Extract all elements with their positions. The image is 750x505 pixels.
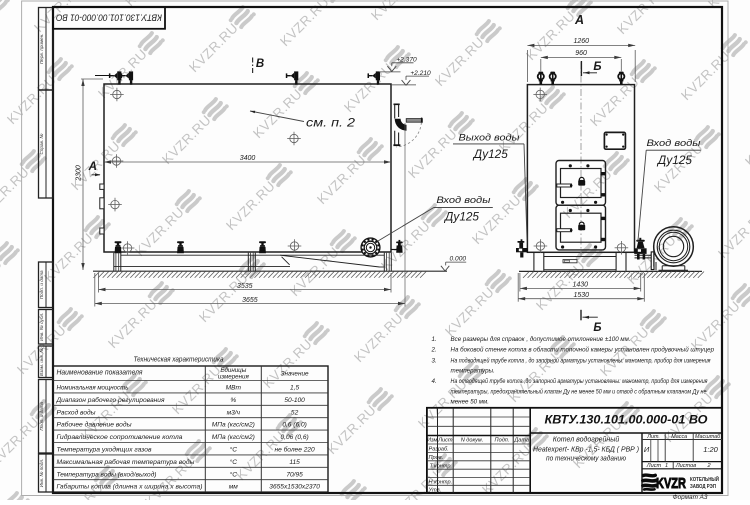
svg-text:На подводящей трубе котла ,: На подводящей трубе котла , до запорной … bbox=[451, 357, 712, 364]
svg-text:Изм: Изм bbox=[427, 438, 438, 444]
svg-text:На отводящей трубе котла ,до з: На отводящей трубе котла ,до запорной ар… bbox=[451, 378, 709, 385]
svg-text:1: 1 bbox=[665, 463, 668, 469]
svg-text:2300: 2300 bbox=[75, 165, 82, 182]
svg-text:Инв. № подл.: Инв. № подл. bbox=[39, 459, 44, 488]
svg-text:Т.контр.: Т.контр. bbox=[430, 464, 453, 470]
svg-text:Heatexpert- КВр -1,5- КБД ( РВ: Heatexpert- КВр -1,5- КБД ( РВР ) bbox=[533, 446, 639, 453]
svg-text:мм: мм bbox=[229, 484, 239, 491]
svg-text:Б: Б bbox=[593, 322, 601, 334]
svg-text:Техническая характеристика: Техническая характеристика bbox=[134, 355, 224, 364]
svg-text:Взам. инв. №: Взам. инв. № bbox=[39, 348, 44, 376]
svg-text:3400: 3400 bbox=[240, 155, 256, 162]
svg-text:1:20: 1:20 bbox=[703, 445, 718, 454]
svg-text:КВТУ.130.101.00.000-01 ВО: КВТУ.130.101.00.000-01 ВО bbox=[545, 414, 708, 426]
svg-text:Разраб.: Разраб. bbox=[429, 447, 449, 453]
svg-text:0.000: 0.000 bbox=[450, 255, 467, 262]
svg-text:МВт: МВт bbox=[226, 385, 242, 392]
svg-text:Утв.: Утв. bbox=[428, 487, 442, 493]
svg-text:KVZR: KVZR bbox=[656, 476, 686, 492]
svg-text:3655х1530х2370: 3655х1530х2370 bbox=[269, 484, 320, 491]
svg-text:Подп. и дата: Подп. и дата bbox=[39, 270, 44, 299]
svg-text:Рабочее давление воды: Рабочее давление воды bbox=[57, 421, 132, 429]
svg-text:4.: 4. bbox=[432, 378, 437, 385]
svg-text:КОТЕЛЬНЫЙ: КОТЕЛЬНЫЙ bbox=[690, 475, 719, 483]
svg-text:менее 50 мм.: менее 50 мм. bbox=[451, 399, 490, 406]
svg-text:На боковой стенке котла в обла: На боковой стенке котла в области топочн… bbox=[451, 347, 715, 354]
svg-text:115: 115 bbox=[289, 459, 300, 466]
svg-text:50-100: 50-100 bbox=[284, 397, 305, 404]
svg-text:Номинальная мощность: Номинальная мощность bbox=[57, 385, 129, 392]
svg-text:Н.контр.: Н.контр. bbox=[429, 480, 453, 486]
svg-text:1260: 1260 bbox=[574, 38, 590, 45]
svg-text:°С: °С bbox=[230, 458, 238, 466]
svg-text:Лист: Лист bbox=[646, 463, 662, 469]
svg-text:И: И bbox=[644, 445, 650, 454]
svg-text:А: А bbox=[88, 161, 97, 173]
svg-text:%: % bbox=[230, 397, 236, 404]
svg-text:Максимальная рабочая температу: Максимальная рабочая температура воды bbox=[57, 458, 195, 466]
svg-text:0,06 (0,6): 0,06 (0,6) bbox=[280, 434, 308, 441]
svg-text:Масса: Масса bbox=[671, 434, 687, 440]
svg-text:N докум.: N докум. bbox=[461, 438, 484, 444]
svg-text:по техническому заданию: по техническому заданию bbox=[546, 454, 627, 462]
svg-text:Справ. №: Справ. № bbox=[39, 134, 44, 155]
svg-text:Котел водогрейный: Котел водогрейный bbox=[553, 436, 620, 444]
svg-text:Гидравлическое сопротивление к: Гидравлическое сопротивление котла bbox=[57, 433, 183, 441]
svg-text:1.: 1. bbox=[432, 336, 437, 343]
svg-text:Все размеры для справок , допу: Все размеры для справок , допустимое отк… bbox=[451, 336, 631, 343]
svg-text:Наименование показателя: Наименование показателя bbox=[57, 370, 143, 377]
svg-text:температуры, предохранительный: температуры, предохранительный клапан Ду… bbox=[451, 388, 707, 395]
svg-text:Формат А3: Формат А3 bbox=[673, 494, 708, 500]
svg-text:0,6 (6,0): 0,6 (6,0) bbox=[282, 422, 307, 429]
svg-text:Лит.: Лит. bbox=[646, 434, 660, 440]
svg-text:МПа (кгс/см2): МПа (кгс/см2) bbox=[212, 422, 255, 429]
svg-text:3535: 3535 bbox=[237, 283, 253, 290]
svg-text:МПа (кгс/см2): МПа (кгс/см2) bbox=[212, 434, 255, 441]
svg-text:960: 960 bbox=[575, 50, 587, 57]
svg-text:А: А bbox=[574, 13, 584, 27]
svg-text:Масштаб: Масштаб bbox=[695, 434, 721, 440]
svg-text:3.: 3. bbox=[432, 357, 437, 364]
svg-text:1430: 1430 bbox=[573, 282, 589, 289]
svg-text:Подп.: Подп. bbox=[495, 438, 510, 444]
svg-text:не более 220: не более 220 bbox=[274, 446, 315, 454]
svg-text:1530: 1530 bbox=[573, 292, 589, 299]
svg-text:ЗАВОД РЭП: ЗАВОД РЭП bbox=[690, 484, 716, 490]
svg-text:52: 52 bbox=[291, 409, 299, 416]
svg-text:температуры.: температуры. bbox=[451, 368, 495, 375]
svg-text:Пров.: Пров. bbox=[429, 455, 444, 461]
svg-text:Габариты котла (длинна х ширин: Габариты котла (длинна х ширина х высота… bbox=[57, 483, 203, 491]
svg-text:Выход воды: Выход воды bbox=[459, 132, 520, 142]
svg-text:Б: Б bbox=[593, 61, 601, 73]
svg-text:Подп. и дата: Подп. и дата bbox=[39, 401, 44, 430]
svg-text:Вход воды: Вход воды bbox=[647, 138, 701, 148]
svg-text:м3/ч: м3/ч bbox=[227, 409, 241, 416]
svg-text:Ду125: Ду125 bbox=[472, 149, 509, 161]
svg-text:Дата: Дата bbox=[513, 438, 529, 444]
svg-text:Температура воды (вход/выход): Температура воды (вход/выход) bbox=[57, 470, 157, 478]
svg-text:Ду125: Ду125 bbox=[443, 212, 480, 224]
svg-text:Температура уходящих газов: Температура уходящих газов bbox=[57, 446, 153, 454]
svg-text:Значение: Значение bbox=[281, 370, 309, 377]
svg-text:Листов: Листов bbox=[675, 463, 696, 469]
svg-text:Лист: Лист bbox=[437, 438, 453, 444]
svg-text:Инв. № дубл.: Инв. № дубл. bbox=[39, 313, 44, 341]
svg-text:3655: 3655 bbox=[242, 297, 258, 304]
svg-text:1,5: 1,5 bbox=[290, 385, 299, 392]
svg-text:КВТУ.130.101.00.000-01 ВО: КВТУ.130.101.00.000-01 ВО bbox=[56, 13, 162, 23]
svg-text:2.: 2. bbox=[431, 347, 437, 354]
svg-text:°С: °С bbox=[230, 470, 238, 478]
svg-text:В: В bbox=[256, 58, 264, 70]
svg-text:70/95: 70/95 bbox=[286, 471, 303, 478]
svg-text:Перв. примен.: Перв. примен. bbox=[39, 33, 44, 64]
svg-text:Вход воды: Вход воды bbox=[436, 195, 490, 205]
svg-text:Диапазон рабочего регулировани: Диапазон рабочего регулирования bbox=[56, 396, 165, 404]
svg-text:Расход воды: Расход воды bbox=[57, 408, 96, 416]
svg-text:Ду125: Ду125 bbox=[656, 155, 693, 167]
svg-text:измерения: измерения bbox=[218, 374, 250, 381]
svg-text:°С: °С bbox=[230, 446, 238, 454]
svg-text:см. п. 2: см. п. 2 bbox=[306, 117, 356, 129]
